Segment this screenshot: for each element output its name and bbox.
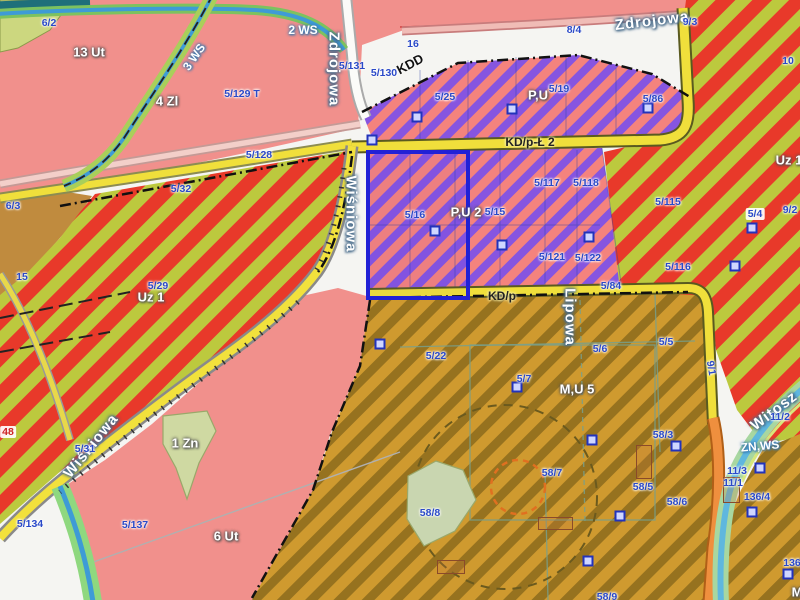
zone-label: 6 Ut (214, 529, 239, 544)
parcel-label: 5/134 (17, 518, 43, 530)
zone-label: 4 Zl (156, 94, 178, 109)
parcel-label: 11/2 (770, 411, 790, 423)
zoning-map[interactable]: 13 Ut6 Ut4 Zl1 ZnUz 1Uz 1P,UP,U 2M,U 5M2… (0, 0, 800, 600)
parcel-label: 58/8 (420, 507, 440, 519)
parcel-label: 5/121 (539, 251, 565, 263)
parcel-point-marker (430, 226, 441, 237)
parcel-pill-label: 5/4 (746, 208, 765, 220)
zone-label: M,U 5 (560, 382, 595, 397)
parcel-point-marker (412, 112, 423, 123)
parcel-label: 9/3 (683, 16, 698, 28)
parcel-label: 58/5 (633, 481, 653, 493)
parcel-label: 10 (782, 55, 794, 67)
parcel-label: 58/3 (653, 429, 673, 441)
road-label: KD/p (488, 289, 516, 303)
parcel-label: 11/1 (723, 477, 743, 489)
parcel-point-marker (730, 261, 741, 272)
zone-label: P,U (528, 88, 548, 103)
zone-water-label: 2 WS (288, 23, 317, 37)
parcel-label: 5/16 (405, 209, 425, 221)
parcel-label: 58/9 (597, 591, 617, 600)
building-footprint (437, 560, 465, 574)
parcel-point-marker (583, 556, 594, 567)
parcel-label: 5/137 (122, 519, 148, 531)
zone-label: 1 Zn (172, 436, 199, 451)
parcel-point-marker (507, 104, 518, 115)
parcel-label: 6/3 (6, 200, 21, 212)
parcel-label: 9/1 (704, 360, 718, 376)
parcel-point-marker (584, 232, 595, 243)
parcel-label: 58/7 (542, 467, 562, 479)
parcel-point-marker (747, 507, 758, 518)
selected-parcel-highlight[interactable] (366, 150, 470, 300)
parcel-point-marker (615, 511, 626, 522)
parcel-point-marker (783, 569, 794, 580)
parcel-label: 5/118 (573, 177, 599, 189)
parcel-point-marker (755, 463, 766, 474)
parcel-label: 8/4 (567, 24, 582, 36)
parcel-label: 5/117 (534, 177, 560, 189)
parcel-label: 136/4 (744, 491, 770, 503)
building-footprint (538, 517, 573, 530)
zone-label: P,U 2 (451, 205, 482, 220)
parcel-label: 5/7 (517, 373, 532, 385)
parcel-label: 5/84 (601, 280, 621, 292)
parcel-red-label: 48 (0, 426, 16, 438)
parcel-label: 5/128 (246, 149, 272, 161)
parcel-label: 16 (407, 38, 419, 50)
parcel-label: 11/3 (727, 465, 747, 477)
parcel-label: 5/32 (171, 183, 191, 195)
zone-label: M (792, 585, 800, 600)
parcel-label: 5/130 (371, 67, 397, 79)
parcel-label: 5/29 (148, 280, 168, 292)
parcel-label: 58/6 (667, 496, 687, 508)
zone-label: Uz 1 (776, 153, 800, 168)
road-label: KD/p-Ł 2 (505, 135, 554, 149)
parcel-label: 9/2 (783, 204, 798, 216)
parcel-label: 5/31 (75, 443, 95, 455)
street-label: Lipowa (562, 288, 579, 346)
parcel-point-marker (497, 240, 508, 251)
parcel-label: 5/115 (655, 196, 681, 208)
parcel-label: 5/129 T (224, 88, 260, 100)
parcel-label: 5/122 (575, 252, 601, 264)
parcel-label: 5/116 (665, 261, 691, 273)
parcel-label: 5/131 (339, 60, 365, 72)
zone-label: 13 Ut (73, 45, 105, 60)
street-label: Wiśniowa (343, 175, 360, 252)
parcel-point-marker (375, 339, 386, 350)
parcel-label: 5/15 (485, 206, 505, 218)
parcel-label: 5/6 (593, 343, 608, 355)
parcel-point-marker (747, 223, 758, 234)
parcel-label: 5/22 (426, 350, 446, 362)
building-footprint (636, 445, 652, 479)
zoning-map-base-layers (0, 0, 800, 600)
parcel-label: 5/19 (549, 83, 569, 95)
parcel-label: 5/25 (435, 91, 455, 103)
parcel-label: 5/5 (659, 336, 674, 348)
parcel-point-marker (367, 135, 378, 146)
parcel-label: 15 (16, 271, 28, 283)
parcel-label: 136 (783, 557, 800, 569)
parcel-label: 5/86 (643, 93, 663, 105)
parcel-point-marker (587, 435, 598, 446)
parcel-label: 6/2 (42, 17, 57, 29)
parcel-point-marker (671, 441, 682, 452)
